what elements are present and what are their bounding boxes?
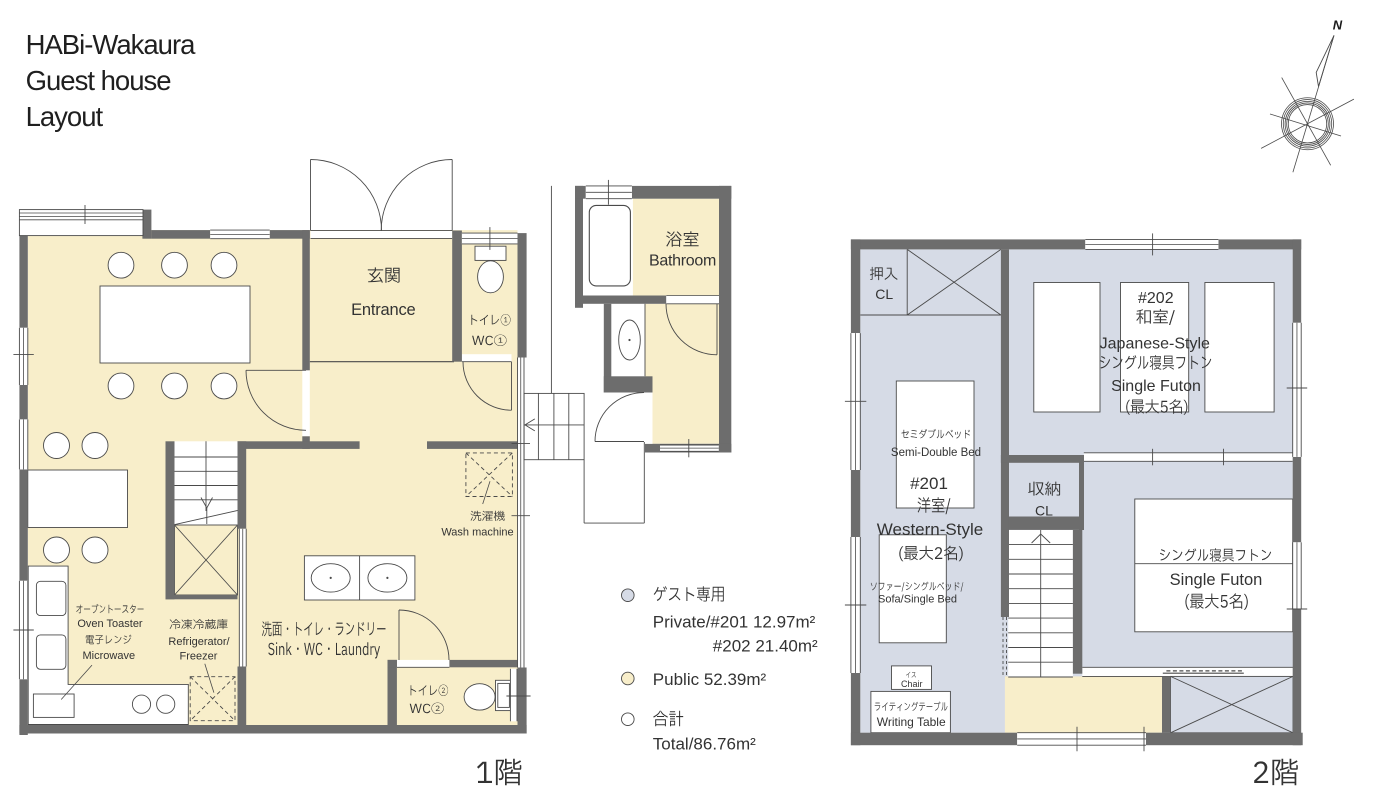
svg-text:Total/86.76m²: Total/86.76m² xyxy=(653,735,756,754)
svg-text:Writing Table: Writing Table xyxy=(877,715,946,729)
svg-text:Western-Style: Western-Style xyxy=(877,520,983,539)
svg-text:Layout: Layout xyxy=(26,101,104,132)
svg-text:HABi-Wakaura: HABi-Wakaura xyxy=(26,29,197,60)
svg-text:Sofa/Single Bed: Sofa/Single Bed xyxy=(878,594,957,606)
svg-text:N: N xyxy=(1333,18,1343,33)
svg-text:Semi-Double Bed: Semi-Double Bed xyxy=(891,447,981,459)
svg-text:Chair: Chair xyxy=(901,679,923,689)
svg-text:Public 52.39m²: Public 52.39m² xyxy=(653,670,767,689)
svg-text:Refrigerator/: Refrigerator/ xyxy=(168,636,230,648)
svg-text:#202: #202 xyxy=(1138,290,1174,307)
svg-text:Wash machine: Wash machine xyxy=(441,527,513,539)
svg-text:CL: CL xyxy=(1035,503,1053,519)
svg-text:CL: CL xyxy=(875,286,893,302)
svg-text:Entrance: Entrance xyxy=(351,301,415,319)
svg-text:Freezer: Freezer xyxy=(180,651,218,663)
svg-text:Single Futon: Single Futon xyxy=(1170,571,1263,589)
svg-text:Bathroom: Bathroom xyxy=(649,253,716,270)
svg-text:Private/#201 12.97m²: Private/#201 12.97m² xyxy=(653,613,816,632)
svg-text:Japanese-Style: Japanese-Style xyxy=(1100,336,1210,353)
svg-text:#201: #201 xyxy=(910,474,948,493)
svg-text:Guest house: Guest house xyxy=(26,65,172,96)
svg-text:#202 21.40m²: #202 21.40m² xyxy=(713,637,818,656)
svg-text:Oven Toaster: Oven Toaster xyxy=(77,618,143,630)
svg-text:Single Futon: Single Futon xyxy=(1111,378,1201,395)
svg-text:Microwave: Microwave xyxy=(83,650,136,662)
